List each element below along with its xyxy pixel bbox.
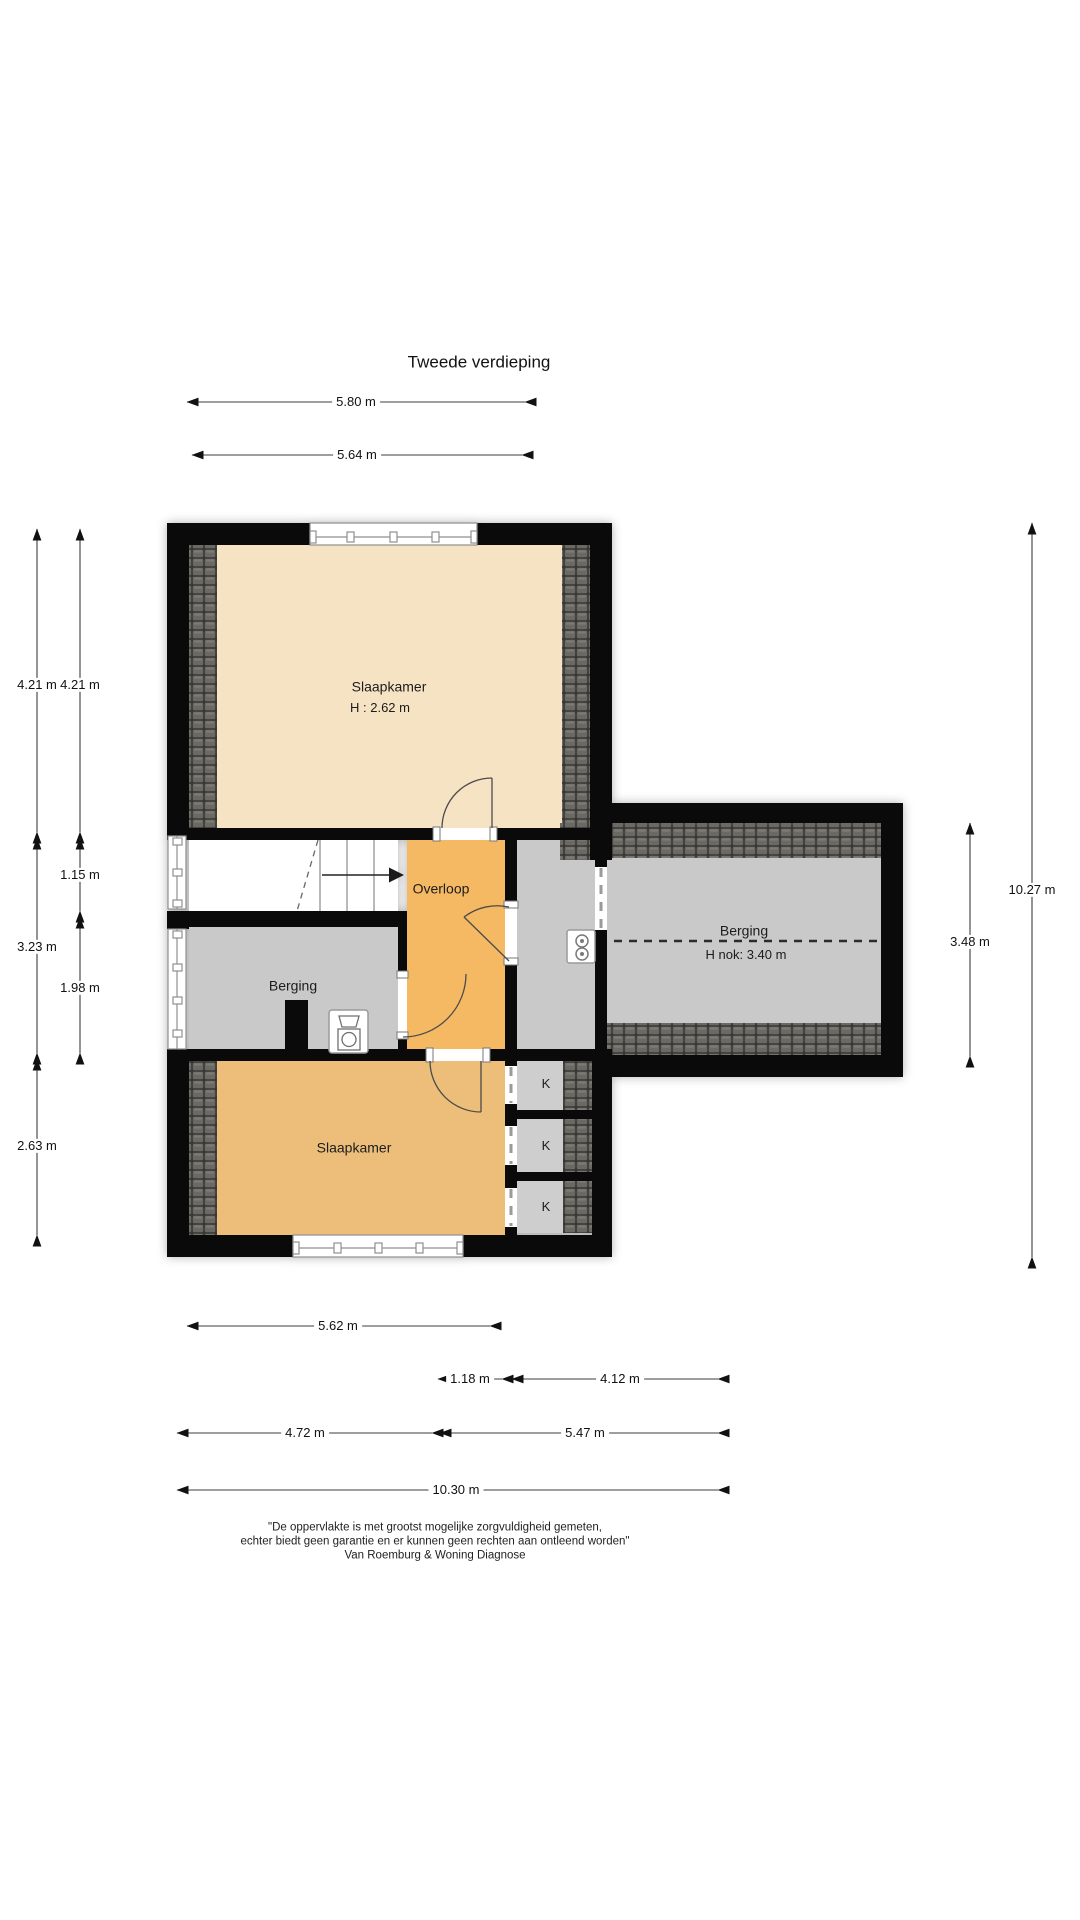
dim-left-inner-2: 1.15 m — [56, 868, 104, 882]
dim-bottom-2: 1.18 m — [446, 1372, 494, 1386]
room-overloop — [407, 840, 505, 1049]
window-left-berging — [168, 929, 186, 1049]
window-top — [310, 523, 477, 545]
chimney — [285, 1000, 308, 1049]
roof-slope-right-top — [562, 545, 590, 828]
label-closet-2: K — [542, 1139, 551, 1153]
washer-icon — [329, 1010, 368, 1053]
dim-bottom-5: 5.47 m — [561, 1426, 609, 1440]
dim-left-outer-2: 3.23 m — [13, 940, 61, 954]
label-berging-left: Berging — [269, 978, 317, 993]
window-bottom — [293, 1235, 463, 1257]
floorplan-page: Tweede verdieping 5.80 m 5.64 m 4.21 m 3… — [0, 0, 1080, 1920]
label-closet-3: K — [542, 1200, 551, 1214]
dim-left-outer-1: 4.21 m — [13, 678, 61, 692]
label-closet-1: K — [542, 1077, 551, 1091]
boiler-icon — [567, 930, 595, 963]
dim-bottom-3: 4.12 m — [596, 1372, 644, 1386]
label-berging-right: Berging — [720, 923, 768, 938]
label-slaapkamer-top-height: H : 2.62 m — [350, 701, 410, 715]
dim-bottom-4: 4.72 m — [281, 1426, 329, 1440]
dim-top-inner: 5.64 m — [333, 448, 381, 462]
dim-right-wing: 3.48 m — [946, 935, 994, 949]
plan-body — [167, 523, 903, 1257]
roof-slope-left-top — [189, 545, 217, 828]
dim-top-outer: 5.80 m — [332, 395, 380, 409]
footer-disclaimer-line1: "De oppervlakte is met grootst mogelijke… — [268, 1522, 602, 1535]
label-slaapkamer-top: Slaapkamer — [352, 679, 427, 694]
floorplan-svg — [0, 0, 1080, 1920]
dim-left-inner-1: 4.21 m — [56, 678, 104, 692]
dim-left-outer-3: 2.63 m — [13, 1139, 61, 1153]
dim-right-total: 10.27 m — [1005, 883, 1060, 897]
dim-bottom-1: 5.62 m — [314, 1319, 362, 1333]
dim-bottom-6: 10.30 m — [429, 1483, 484, 1497]
roof-slope-left-bottom — [189, 1061, 217, 1235]
footer-disclaimer-line2: echter biedt geen garantie en er kunnen … — [241, 1536, 630, 1549]
closets — [517, 1061, 563, 1233]
page-title: Tweede verdieping — [408, 354, 551, 373]
roof-slope-wing-bottom — [607, 1023, 881, 1055]
label-overloop: Overloop — [413, 881, 470, 896]
roof-slope-closets — [563, 1061, 592, 1233]
footer-company: Van Roemburg & Woning Diagnose — [344, 1550, 525, 1563]
dim-left-inner-3: 1.98 m — [56, 981, 104, 995]
window-left-stairs — [168, 836, 186, 909]
label-slaapkamer-bottom: Slaapkamer — [317, 1140, 392, 1155]
label-berging-right-ridge: H nok: 3.40 m — [706, 948, 787, 962]
